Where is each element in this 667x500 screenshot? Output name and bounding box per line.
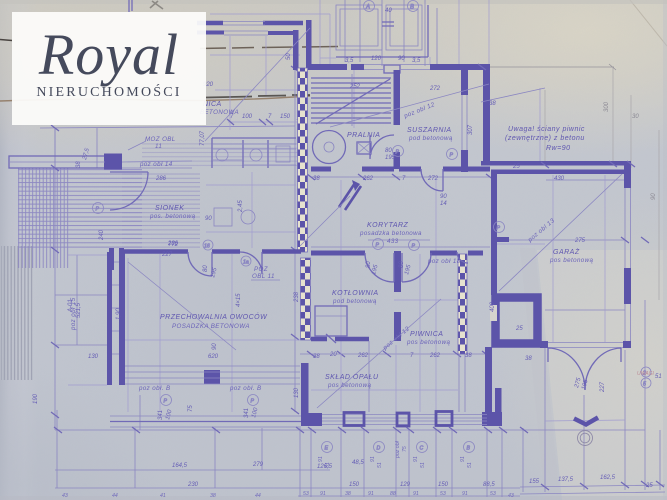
svg-text:4×15: 4×15: [236, 293, 242, 307]
svg-text:150: 150: [280, 114, 291, 120]
svg-text:41: 41: [160, 493, 166, 499]
svg-text:P: P: [497, 226, 501, 232]
svg-text:51: 51: [655, 374, 662, 380]
svg-text:1a: 1a: [243, 260, 249, 266]
svg-text:91: 91: [318, 456, 324, 462]
svg-text:16: 16: [204, 244, 210, 250]
svg-text:75: 75: [188, 405, 194, 412]
svg-text:91: 91: [462, 491, 468, 497]
svg-text:PRZECHOWALNIA OWOCÓW: PRZECHOWALNIA OWOCÓW: [160, 312, 268, 321]
svg-text:51: 51: [420, 462, 426, 468]
svg-text:230: 230: [187, 482, 199, 488]
svg-text:posadzka betonowa: posadzka betonowa: [359, 230, 422, 237]
svg-text:SIONEK: SIONEK: [155, 205, 184, 212]
svg-text:P: P: [96, 207, 100, 213]
svg-text:poz obł 18: poz obł 18: [427, 258, 461, 265]
svg-text:91: 91: [320, 491, 326, 497]
svg-text:P: P: [251, 399, 255, 405]
svg-text:620: 620: [208, 354, 219, 360]
svg-text:53: 53: [490, 491, 496, 497]
svg-text:227: 227: [600, 381, 606, 393]
svg-text:MOZ OBL: MOZ OBL: [145, 136, 176, 143]
svg-text:11: 11: [155, 143, 162, 150]
svg-text:38: 38: [76, 161, 82, 168]
svg-text:P: P: [396, 150, 400, 156]
svg-text:43: 43: [508, 493, 514, 499]
svg-text:430: 430: [554, 176, 565, 182]
svg-text:286: 286: [167, 241, 179, 247]
svg-text:B: B: [410, 5, 414, 11]
svg-text:238: 238: [294, 291, 300, 303]
svg-text:75: 75: [402, 446, 408, 452]
svg-text:341: 341: [158, 410, 164, 420]
svg-text:38: 38: [465, 353, 472, 359]
svg-text:D: D: [377, 446, 381, 452]
svg-text:90: 90: [212, 343, 218, 350]
svg-text:POZ: POZ: [254, 266, 268, 273]
svg-text:80: 80: [385, 148, 392, 154]
svg-text:400: 400: [490, 301, 496, 312]
svg-text:240: 240: [99, 229, 105, 241]
svg-text:190: 190: [33, 393, 39, 404]
svg-text:53: 53: [303, 491, 309, 497]
svg-text:90: 90: [398, 56, 405, 62]
svg-text:poz obł: poz obł: [395, 440, 401, 459]
svg-text:252: 252: [349, 84, 361, 90]
svg-text:E: E: [325, 446, 329, 452]
svg-text:A: A: [365, 5, 370, 11]
svg-text:20: 20: [329, 352, 337, 358]
svg-text:pos. betonową: pos. betonową: [149, 213, 196, 220]
svg-text:SUSZARNIA: SUSZARNIA: [407, 127, 452, 134]
svg-text:C: C: [420, 446, 424, 452]
svg-text:1,90: 1,90: [116, 308, 122, 320]
svg-text:UWAGI: UWAGI: [637, 371, 654, 377]
svg-text:91: 91: [368, 491, 374, 497]
svg-text:521,5: 521,5: [76, 302, 82, 318]
svg-text:162,5: 162,5: [600, 475, 616, 481]
svg-text:120: 120: [371, 56, 382, 62]
svg-text:433: 433: [387, 238, 399, 245]
svg-text:38: 38: [313, 354, 320, 360]
svg-text:38: 38: [489, 101, 496, 107]
svg-text:30: 30: [632, 114, 639, 120]
svg-text:PIWNICA: PIWNICA: [410, 331, 443, 338]
svg-text:25: 25: [645, 483, 653, 489]
svg-text:38: 38: [313, 176, 320, 182]
svg-text:90: 90: [651, 193, 657, 200]
svg-text:50: 50: [286, 53, 292, 60]
svg-text:150: 150: [349, 482, 360, 488]
svg-text:279: 279: [252, 462, 264, 468]
svg-text:pos betonową: pos betonową: [406, 339, 450, 346]
svg-text:51: 51: [325, 462, 331, 468]
svg-text:pos betonową: pos betonową: [327, 382, 371, 389]
svg-text:P: P: [450, 153, 454, 159]
svg-text:286: 286: [155, 176, 167, 182]
svg-text:3,5: 3,5: [345, 58, 354, 64]
svg-text:poz obł. B: poz obł. B: [138, 385, 171, 392]
svg-text:44: 44: [255, 493, 261, 499]
svg-text:129: 129: [400, 482, 411, 488]
svg-text:272: 272: [429, 86, 441, 92]
svg-text:137,5: 137,5: [558, 477, 574, 483]
svg-text:164,5: 164,5: [172, 463, 188, 469]
svg-text:262: 262: [362, 176, 374, 182]
svg-text:40: 40: [385, 8, 392, 14]
svg-text:91: 91: [460, 456, 466, 462]
svg-text:5: 5: [643, 382, 646, 388]
svg-text:POSADZKA BETONOWA: POSADZKA BETONOWA: [172, 323, 250, 330]
svg-text:poz obł. B: poz obł. B: [229, 385, 262, 392]
svg-text:PRALNIA: PRALNIA: [347, 132, 380, 139]
svg-text:300: 300: [604, 101, 610, 112]
svg-text:90: 90: [440, 194, 447, 200]
svg-text:88: 88: [390, 491, 396, 497]
svg-text:80: 80: [366, 261, 372, 268]
svg-text:130: 130: [294, 387, 300, 398]
svg-text:272: 272: [427, 176, 439, 182]
svg-text:38: 38: [345, 491, 351, 497]
svg-text:80: 80: [203, 265, 209, 272]
svg-text:KORYTARZ: KORYTARZ: [367, 222, 409, 229]
svg-text:91: 91: [413, 456, 419, 462]
svg-text:155: 155: [529, 479, 540, 485]
svg-text:P: P: [164, 399, 168, 405]
svg-text:25: 25: [512, 164, 520, 170]
svg-text:80: 80: [399, 261, 405, 268]
svg-text:262: 262: [357, 353, 369, 359]
svg-text:KOTŁOWNIA: KOTŁOWNIA: [332, 290, 379, 297]
svg-text:A-01: A-01: [68, 299, 74, 313]
svg-text:90: 90: [205, 216, 212, 222]
svg-text:48,5: 48,5: [352, 460, 364, 466]
svg-text:SKŁAD OPAŁU: SKŁAD OPAŁU: [325, 374, 379, 381]
svg-text:130: 130: [88, 354, 99, 360]
svg-text:pos betonową: pos betonową: [549, 257, 593, 264]
svg-text:Rw=90: Rw=90: [546, 145, 570, 152]
svg-text:2,45: 2,45: [238, 200, 244, 213]
svg-text:53: 53: [440, 491, 446, 497]
svg-text:25: 25: [515, 326, 523, 332]
svg-text:51: 51: [467, 462, 473, 468]
svg-text:150: 150: [438, 482, 449, 488]
svg-text:100: 100: [242, 114, 253, 120]
svg-text:43: 43: [62, 493, 68, 499]
svg-text:195: 195: [385, 155, 396, 161]
svg-text:P: P: [412, 244, 416, 250]
svg-text:341: 341: [244, 408, 250, 418]
svg-text:77,07: 77,07: [200, 130, 206, 146]
svg-text:38: 38: [210, 493, 216, 499]
svg-text:poz obł 14: poz obł 14: [139, 161, 173, 168]
svg-text:3,5: 3,5: [412, 58, 421, 64]
svg-text:88,5: 88,5: [483, 482, 495, 488]
svg-text:307: 307: [468, 124, 474, 135]
svg-text:51: 51: [377, 462, 383, 468]
svg-text:pod betonową: pod betonową: [408, 135, 453, 142]
svg-text:pod betonową: pod betonową: [332, 298, 377, 305]
svg-text:227: 227: [161, 252, 173, 258]
svg-text:B: B: [467, 446, 471, 452]
svg-text:P: P: [376, 243, 380, 249]
svg-text:262: 262: [429, 353, 441, 359]
svg-text:OBL 11: OBL 11: [252, 273, 275, 280]
svg-text:14: 14: [440, 201, 447, 207]
svg-text:38: 38: [525, 356, 532, 362]
svg-text:(zewnętrzne) z betonu: (zewnętrzne) z betonu: [505, 135, 585, 142]
svg-text:91: 91: [413, 491, 419, 497]
svg-text:Uwaga! ściany piwnic: Uwaga! ściany piwnic: [508, 126, 585, 133]
svg-text:275: 275: [574, 238, 586, 244]
svg-text:44: 44: [112, 493, 118, 499]
svg-text:GARAŻ: GARAŻ: [553, 248, 580, 256]
svg-text:91: 91: [370, 456, 376, 462]
